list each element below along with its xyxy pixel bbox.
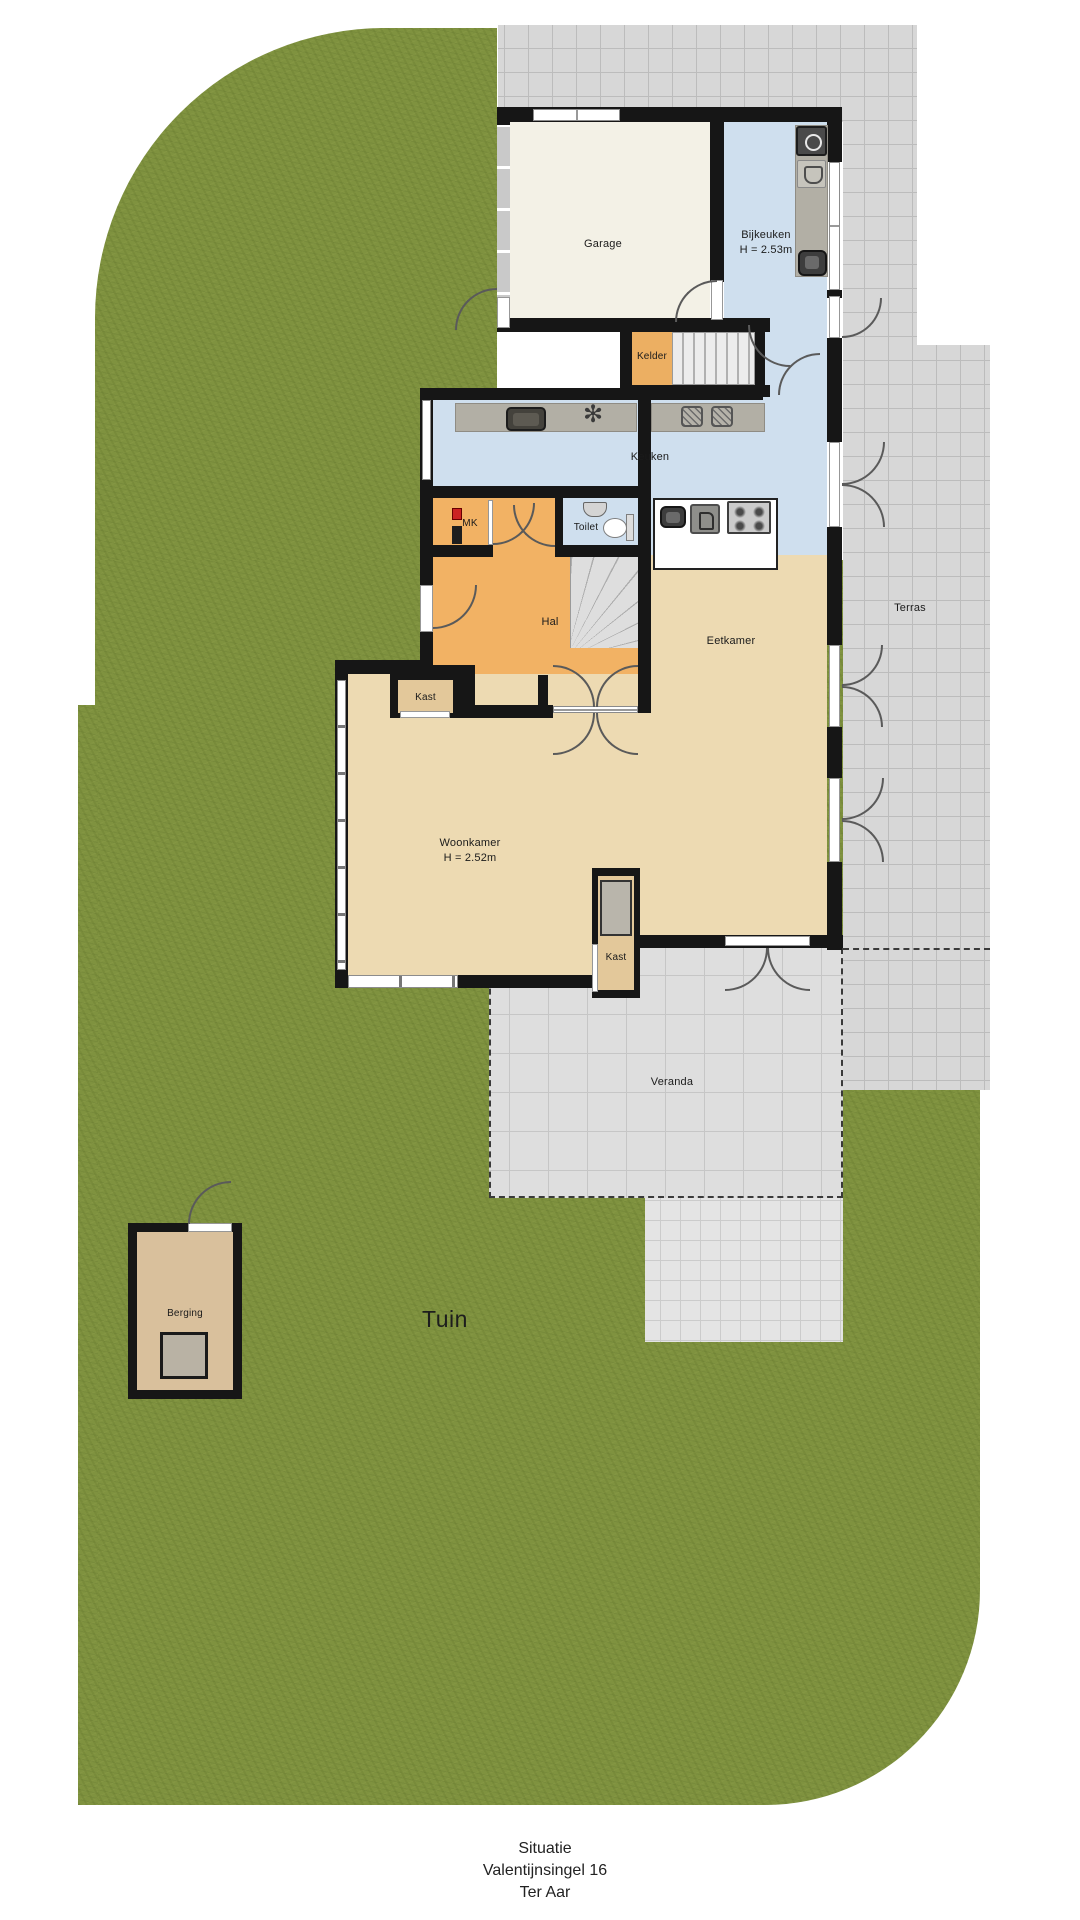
wall xyxy=(458,975,598,988)
french-door xyxy=(829,778,840,862)
french-door xyxy=(725,936,810,946)
drawing-title-line1: Situatie xyxy=(395,1838,695,1860)
kitchen-counter xyxy=(651,403,765,432)
window xyxy=(348,975,458,988)
room-label-berging: Berging xyxy=(128,1306,242,1321)
wall xyxy=(827,727,842,778)
room-garage-floor xyxy=(510,122,710,318)
garden-grass xyxy=(78,705,98,1805)
room-label-eetkamer: Eetkamer xyxy=(681,634,781,649)
sink-icon xyxy=(506,407,546,431)
room-label-mk: MK xyxy=(455,516,485,531)
area-label-veranda: Veranda xyxy=(622,1075,722,1090)
room-label-kast-hal: Kast xyxy=(398,690,453,705)
room-label-woonkamer-name: Woonkamer xyxy=(440,837,501,849)
window xyxy=(533,109,620,121)
shed-door xyxy=(188,1223,232,1232)
area-label-tuin: Tuin xyxy=(390,1306,500,1333)
hall-stairs xyxy=(570,553,639,648)
drawing-title-line3: Ter Aar xyxy=(395,1882,695,1904)
room-label-bijkeuken: BijkeukenH = 2.53m xyxy=(716,228,816,258)
shed-fixture xyxy=(160,1332,208,1379)
wall xyxy=(827,107,842,162)
hob-star-icon: ✻ xyxy=(583,400,603,429)
window xyxy=(422,400,431,480)
double-door xyxy=(553,706,638,713)
kitchen-counter xyxy=(455,403,637,432)
room-label-kelder: Kelder xyxy=(630,349,674,364)
room-label-bijkeuken-name: Bijkeuken xyxy=(741,229,791,241)
room-label-toilet: Toilet xyxy=(560,520,612,535)
washing-machine-icon xyxy=(796,126,827,156)
room-label-garage: Garage xyxy=(553,237,653,252)
window xyxy=(829,162,840,290)
boundary-dashed-line xyxy=(843,948,990,950)
laundry-basket-icon xyxy=(797,160,826,188)
gas-hob-icon xyxy=(727,501,771,534)
area-label-terras: Terras xyxy=(870,601,950,616)
front-door xyxy=(420,585,433,632)
door xyxy=(497,297,510,328)
room-eetkamer-floor xyxy=(640,555,827,935)
appliance-icon xyxy=(681,406,703,427)
wall xyxy=(420,490,433,585)
french-door xyxy=(829,442,840,527)
terrace-tiles xyxy=(843,25,917,1090)
wall xyxy=(555,545,640,557)
floor-plan: ✻ Garage BijkeukenH = 2.53m Kelder Keuke… xyxy=(0,0,1080,1920)
room-label-woonkamer-height: H = 2.52m xyxy=(444,852,497,864)
room-label-woonkamer: WoonkamerH = 2.52m xyxy=(420,836,520,866)
wall xyxy=(497,318,770,332)
wall xyxy=(538,675,548,708)
cellar-stairs xyxy=(672,332,755,385)
sink-icon xyxy=(660,506,686,528)
room-label-hal: Hal xyxy=(525,615,575,630)
cabinet xyxy=(600,880,632,936)
door xyxy=(829,296,840,338)
garden-path-tiles xyxy=(645,1198,843,1342)
room-label-bijkeuken-height: H = 2.53m xyxy=(740,244,793,256)
appliance-icon xyxy=(711,406,733,427)
wall xyxy=(827,338,842,442)
room-label-keuken: Keuken xyxy=(600,450,700,465)
toilet-cistern-icon xyxy=(626,514,634,541)
wall xyxy=(420,486,640,498)
coffee-maker-icon xyxy=(690,504,720,534)
drawing-title: Situatie Valentijnsingel 16 Ter Aar xyxy=(395,1838,695,1904)
closet-door xyxy=(400,711,450,718)
drawing-title-line2: Valentijnsingel 16 xyxy=(395,1860,695,1882)
wall xyxy=(827,527,842,645)
terrace-tiles xyxy=(917,345,990,1090)
garage-door xyxy=(497,125,510,301)
window xyxy=(337,680,346,970)
french-door xyxy=(829,645,840,727)
room-label-kast-woonkamer: Kast xyxy=(592,950,640,965)
